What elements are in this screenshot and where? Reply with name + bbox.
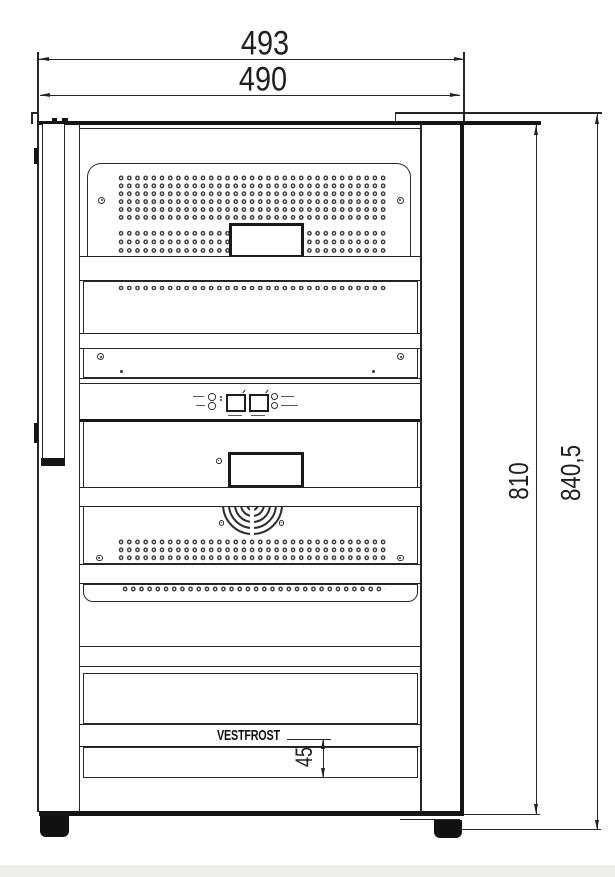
dim-arrow-left-icon xyxy=(39,57,49,61)
cabinet-bottom-edge xyxy=(39,811,464,816)
screw-icon xyxy=(279,520,285,526)
section-side-line xyxy=(83,422,84,487)
door-hinge-strip xyxy=(42,124,65,466)
side-hinge-tab xyxy=(34,423,39,443)
screw-icon xyxy=(96,555,103,562)
dim-arrow-right-icon xyxy=(450,93,460,97)
display-caption-mark xyxy=(251,415,265,416)
shelf-bar xyxy=(80,564,420,585)
rivet-dot xyxy=(372,370,375,373)
temperature-display-icon xyxy=(226,394,247,412)
brand-label: VESTFROST xyxy=(217,727,280,744)
right-foot xyxy=(434,820,463,838)
perforation-grid xyxy=(117,174,387,222)
cabinet-top-edge xyxy=(37,121,540,125)
left-foot xyxy=(40,816,69,837)
shelf-bar xyxy=(80,333,420,349)
control-label-mark xyxy=(281,405,298,406)
interior-wall-right xyxy=(420,124,421,812)
dim-arrow-up-icon xyxy=(321,739,325,749)
interior-wall-left xyxy=(79,124,80,812)
hinge-strip-end-cap xyxy=(41,458,66,467)
lid-top-line xyxy=(395,112,602,114)
floor-extension-line xyxy=(462,829,601,830)
section-side-line xyxy=(417,422,418,487)
dim-overall-width-label: 493 xyxy=(241,25,289,64)
dim-body-height-label: 810 xyxy=(503,462,535,499)
base-grille-panel xyxy=(83,747,418,778)
rivet-dot xyxy=(120,370,123,373)
dim-body-width-label: 490 xyxy=(239,61,287,100)
screw-icon xyxy=(98,197,105,204)
control-label-mark xyxy=(193,396,204,397)
perforation-row xyxy=(117,284,387,292)
screw-icon xyxy=(97,353,104,360)
screwed-cover-panel xyxy=(83,348,418,378)
interior-ceiling-line xyxy=(79,128,421,129)
dim-arrow-left-icon xyxy=(40,93,50,97)
cabinet-left-edge xyxy=(37,122,39,812)
bottom-extension-line xyxy=(463,814,540,815)
fan-housing-box xyxy=(228,452,304,488)
perforation-row xyxy=(121,585,385,594)
control-label-mark xyxy=(196,405,205,406)
screw-icon xyxy=(219,520,225,526)
side-hinge-tab xyxy=(34,148,39,165)
perforation-grid xyxy=(117,538,387,562)
dim-grille-height-label: 45 xyxy=(291,747,319,767)
evaporator-cutout xyxy=(229,223,304,259)
top-hinge-nub xyxy=(62,118,69,122)
screw-icon xyxy=(397,555,404,562)
dim-arrow-down-icon xyxy=(534,804,538,814)
display-caption-mark xyxy=(228,415,242,416)
dim-arrow-up-icon xyxy=(595,114,599,124)
temperature-display-icon xyxy=(249,394,270,412)
control-button-icon xyxy=(208,393,216,401)
shelf-bar xyxy=(80,487,420,508)
control-button-icon xyxy=(208,402,216,410)
dim-arrow-up-icon xyxy=(534,125,538,135)
indicator-dot xyxy=(220,399,222,401)
dim-body-width-line xyxy=(40,95,460,96)
dim-total-height-label: 840,5 xyxy=(555,445,587,501)
technical-drawing-canvas: 493 490 810 840,5 xyxy=(0,0,615,877)
screw-icon xyxy=(397,353,404,360)
control-label-mark xyxy=(281,396,294,397)
dim-body-height-line xyxy=(536,125,537,814)
dim-total-height-line xyxy=(597,114,598,830)
lid-left-step xyxy=(31,112,32,124)
lower-strip xyxy=(80,646,420,668)
cabinet-right-edge xyxy=(460,121,464,812)
screw-icon xyxy=(216,458,222,464)
dim-arrow-down-icon xyxy=(321,768,325,778)
indicator-dot xyxy=(220,396,222,398)
lower-panel xyxy=(83,673,418,725)
shelf-bar xyxy=(80,256,420,281)
page-edge-band xyxy=(0,865,615,877)
screw-icon xyxy=(397,197,404,204)
top-hinge-nub xyxy=(52,118,57,122)
